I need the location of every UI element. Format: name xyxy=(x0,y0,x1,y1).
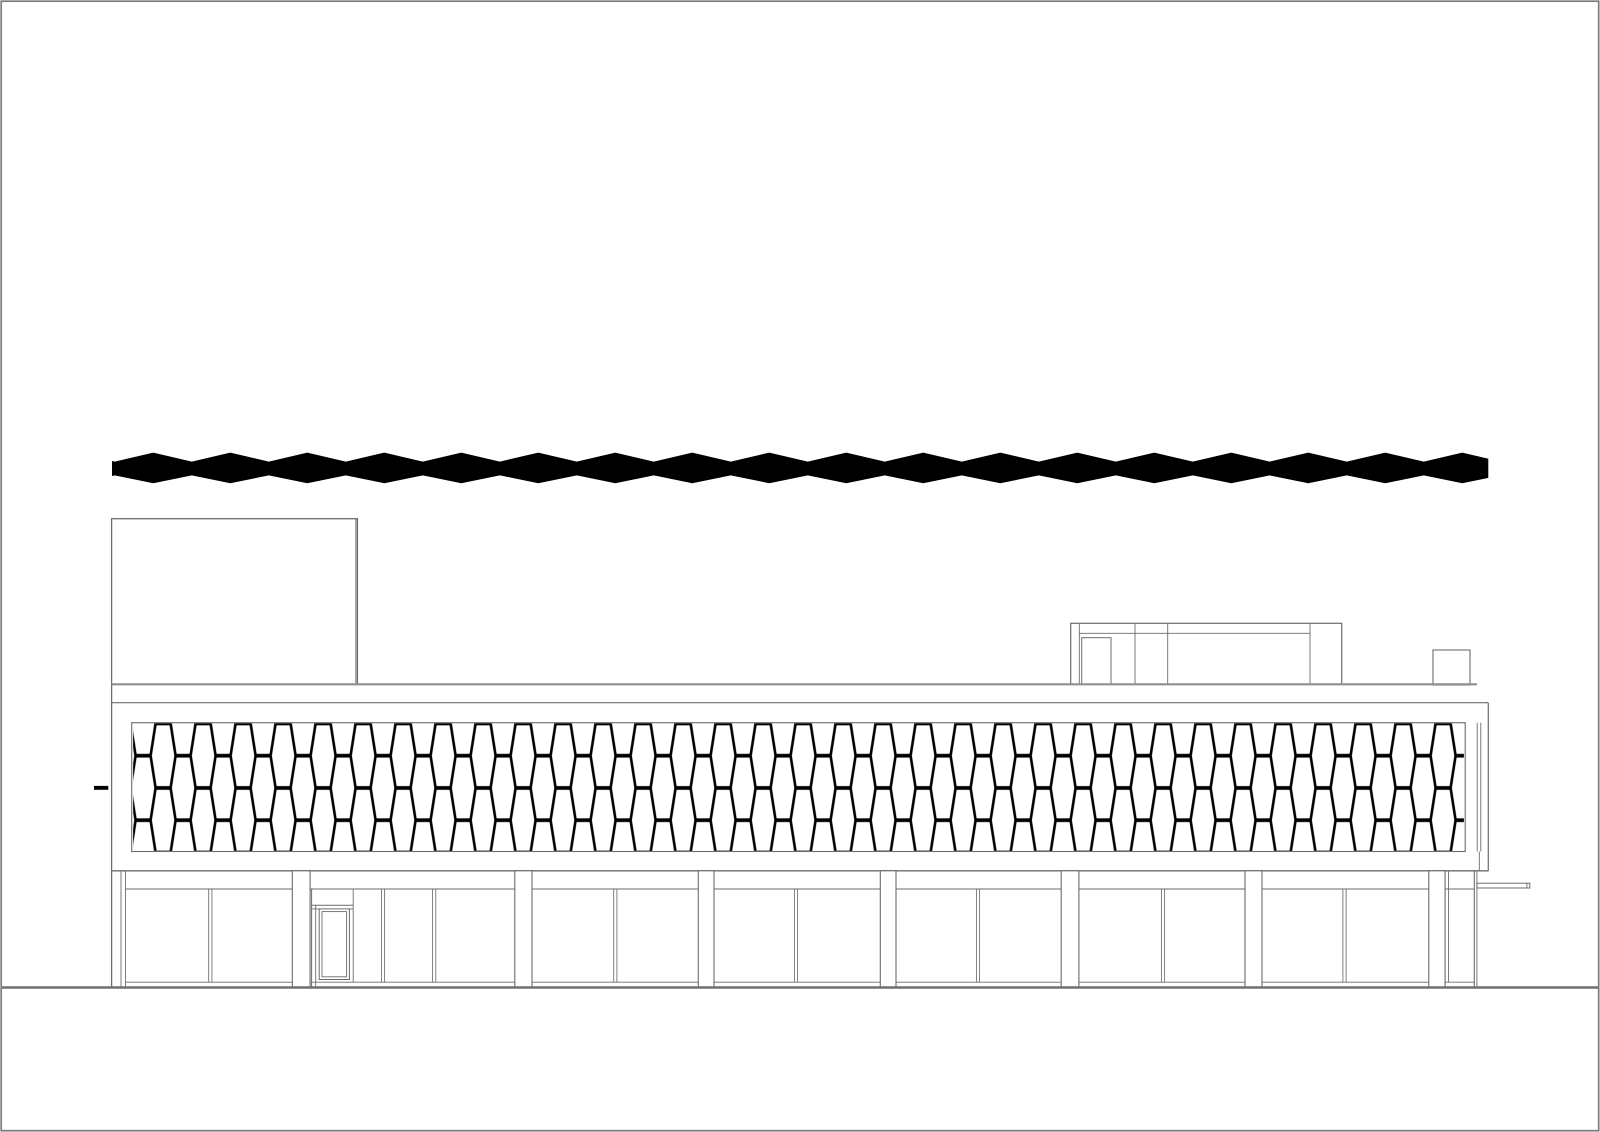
entry-door xyxy=(312,889,385,988)
page-border xyxy=(1,1,1599,1131)
rooftop-penthouse xyxy=(1071,623,1342,684)
elevation-drawing-canvas xyxy=(0,0,1600,1132)
hex-screen-band xyxy=(94,723,1481,852)
rooftop-small-box xyxy=(1433,650,1470,685)
handrail xyxy=(1477,883,1530,888)
zigzag-parapet-band xyxy=(38,453,1540,484)
drawing-page xyxy=(0,0,1600,1132)
rooftop-box-left xyxy=(112,519,358,685)
floor-slab-band xyxy=(111,852,1489,871)
